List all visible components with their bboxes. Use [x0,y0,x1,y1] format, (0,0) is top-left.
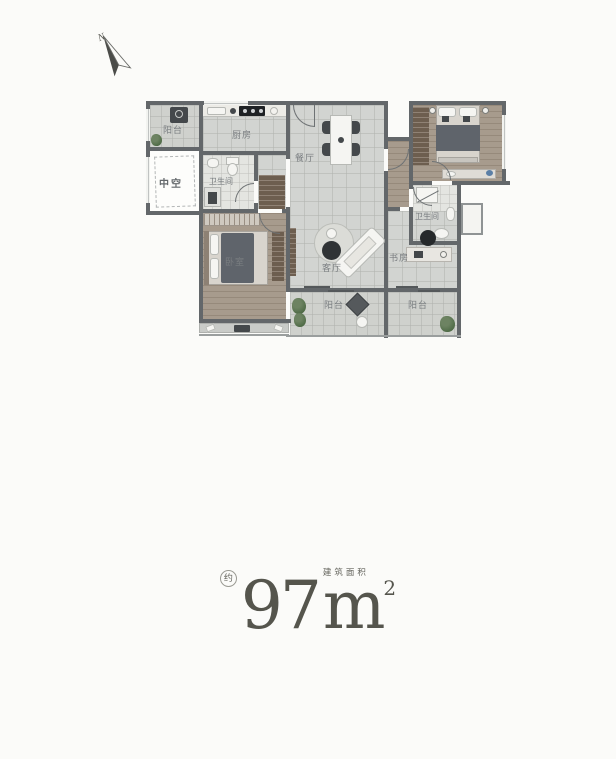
wall [286,101,290,159]
stove-burner-icon [251,109,255,113]
bay-window-bench-icon [234,325,250,332]
area-annotation: 约 97 建筑面积 m 2 [0,566,616,633]
bedroom-cabinet-icon [272,231,284,281]
kitchen-sink-icon [207,107,226,115]
bed-foot-bench-icon [438,157,478,163]
small-table-icon [356,316,368,328]
bed-blanket-icon [436,125,480,151]
sliding-door [304,286,330,288]
label-balcony-bottom-right: 阳台 [408,298,428,311]
side-table-icon [326,228,337,239]
bed-headboard-icon [204,231,209,285]
wall [384,171,388,292]
pillow-icon [210,258,219,279]
sliding-door [418,290,440,292]
label-kitchen: 厨房 [232,128,252,141]
pillow-icon [210,234,219,255]
wall [199,151,289,155]
wardrobe-icon [203,213,261,226]
hall-cabinet-icon [259,175,285,209]
toilet-bowl-icon [434,228,449,239]
sliding-door [328,290,354,292]
wall [384,292,388,338]
plant-icon [440,316,455,332]
table-setting-icon [338,137,344,143]
bath-sink-icon [207,158,219,168]
equipment-platform [461,203,483,235]
dining-chair-icon [322,143,330,156]
label-bedroom-left: 卧室 [225,255,245,268]
entry-door-leaf [314,105,315,127]
area-unit-stack: 建筑面积 m [323,566,383,633]
desk-lamp-icon [440,251,447,258]
desk-chair-icon [420,230,436,246]
plant-icon [294,313,306,327]
bath-sink-icon [446,207,455,221]
cushion-icon [442,116,449,122]
wall [146,147,203,151]
stove-burner-icon [259,109,263,113]
floor-plan-page: { "compass": { "label": "N" }, "plan": {… [0,0,616,759]
wall [254,155,258,181]
area-exponent: 2 [383,576,396,600]
dining-chair-icon [352,121,360,134]
label-bathroom-1: 卫生间 [209,176,233,187]
balustrade [286,335,461,337]
wall [409,207,413,241]
plate-icon [270,107,278,115]
tv-console-icon [290,228,296,276]
wall [282,209,289,213]
wall [199,101,203,215]
wardrobe-icon [413,107,429,165]
plant-icon [151,134,162,146]
wall [146,211,203,215]
approx-badge: 约 [220,570,237,587]
laptop-icon [414,251,423,258]
wall [199,211,203,323]
sconce-icon [429,107,436,114]
sliding-door [396,286,418,288]
label-dining: 餐厅 [295,151,315,164]
cushion-icon [463,116,470,122]
window [146,157,150,203]
label-study: 书房 [389,251,409,264]
wall [384,141,388,149]
label-balcony-top-left: 阳台 [163,123,183,136]
stove-burner-icon [243,109,247,113]
dining-chair-icon [352,143,360,156]
balustrade [199,334,289,336]
shower-mat-icon [208,192,217,204]
label-void: 中空 [159,175,183,190]
dining-chair-icon [322,121,330,134]
window [502,115,506,169]
floor-plan: 阳台 厨房 中空 卫生间 卧室 餐厅 客厅 阳台 卫生间 书房 阳台 [146,95,510,343]
kettle-icon [230,108,236,114]
label-bathroom-2: 卫生间 [415,211,439,222]
toilet-bowl-icon [227,163,238,176]
window [146,109,150,141]
coffee-table-icon [322,241,341,260]
label-living: 客厅 [322,261,342,274]
vanity-blue-item-icon [486,170,493,176]
plant-icon [292,298,306,314]
wall [384,101,388,141]
label-balcony-bottom-left: 阳台 [324,298,344,311]
area-unit: m [323,579,383,633]
wall [388,207,400,211]
sconce-icon [482,107,489,114]
north-compass-icon: N [90,24,140,86]
area-value: 97 [241,579,319,633]
washing-machine-door-icon [175,110,183,118]
